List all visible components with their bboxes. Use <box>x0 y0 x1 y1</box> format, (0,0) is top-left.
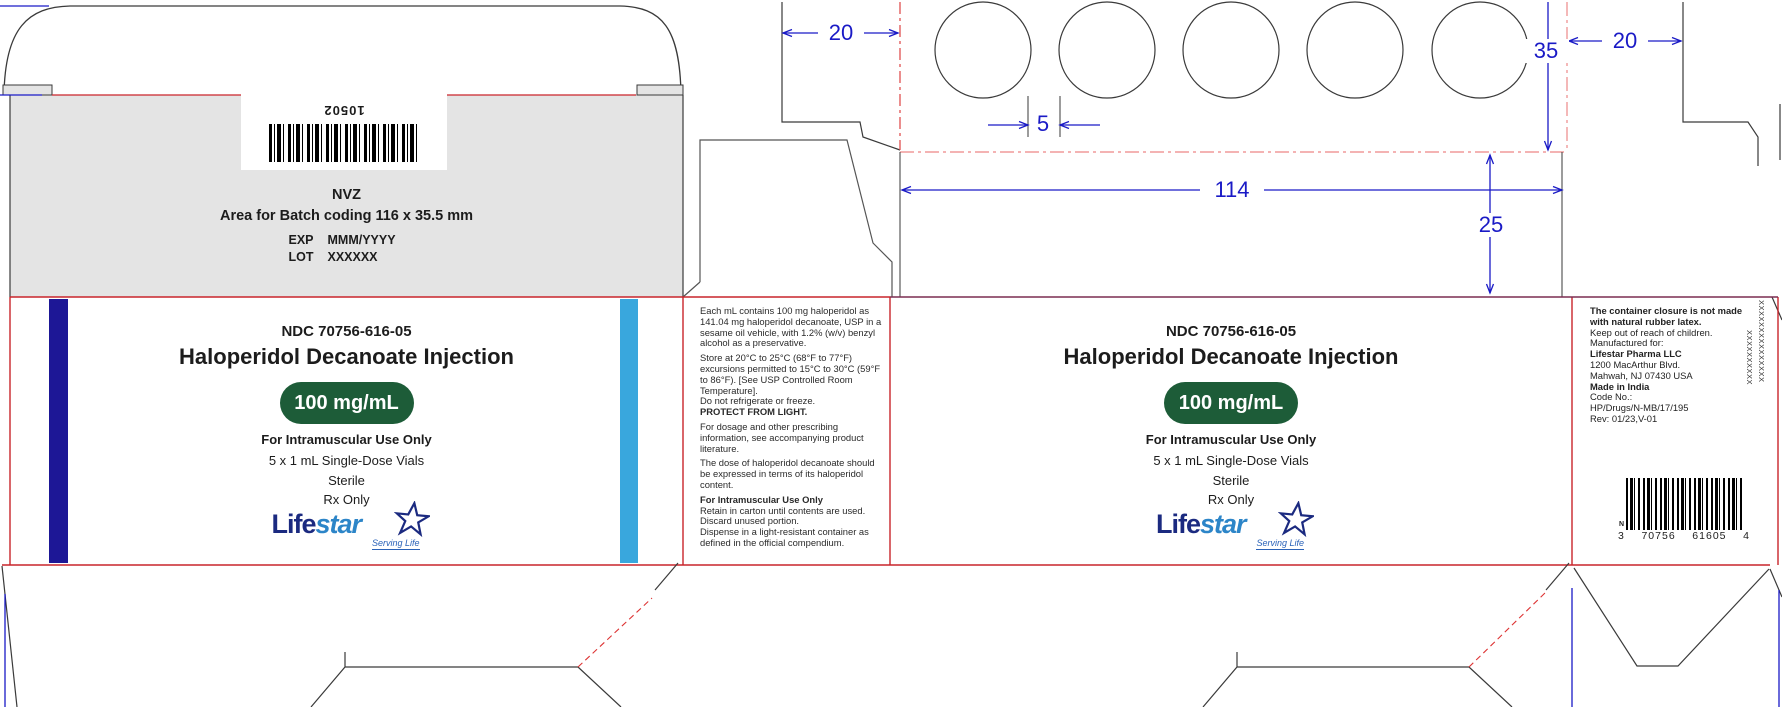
logo-life-text: Life <box>272 509 316 539</box>
rx-statement: Rx Only <box>890 492 1572 507</box>
lot-row: LOT XXXXXX <box>10 250 683 264</box>
im-use-text: For Intramuscular Use Only <box>700 495 884 506</box>
batch-code-label: NVZ <box>10 187 683 203</box>
right-flap-right-edge <box>1683 2 1758 166</box>
dim-114: 114 <box>1200 178 1264 202</box>
middle-tab-outline <box>683 140 892 297</box>
exp-row: EXP MMM/YYYY <box>10 233 683 247</box>
logo-life-text: Life <box>1156 509 1200 539</box>
dispense-text: Dispense in a light-resistant container … <box>700 527 884 549</box>
ndc-digit-group: 61605 <box>1692 530 1726 542</box>
dosage-info-text: For dosage and other prescribing informa… <box>700 422 884 454</box>
sterile-statement: Sterile <box>890 473 1572 488</box>
rx-statement: Rx Only <box>10 492 683 507</box>
ndc-barcode-digits: 3 70756 61605 4 <box>1618 530 1750 542</box>
lot-value: XXXXXX <box>328 250 420 264</box>
pack-statement: 5 x 1 mL Single-Dose Vials <box>10 453 683 468</box>
serial-placeholder-1: XXXXXXXXXXXXXXX <box>1757 300 1766 383</box>
lifestar-logo: Lifestar Serving Life <box>10 509 683 553</box>
lot-label: LOT <box>274 250 314 264</box>
product-title: Haloperidol Decanoate Injection <box>890 344 1572 370</box>
ndc-digit-group: 70756 <box>1641 530 1675 542</box>
latex-note: The container closure is not made with n… <box>1590 306 1762 328</box>
batch-barcode <box>269 124 419 162</box>
star-icon <box>1278 501 1314 539</box>
left-lock-tab <box>3 85 52 95</box>
side-text-panel: Each mL contains 100 mg haloperidol as 1… <box>700 306 884 553</box>
manufacturer-address2: Mahwah, NJ 07430 USA <box>1590 371 1762 382</box>
exp-label: EXP <box>274 233 314 247</box>
ndc-barcode-n: N <box>1619 521 1624 528</box>
star-icon <box>394 501 430 539</box>
lifestar-logo: Lifestar Serving Life <box>890 509 1572 553</box>
logo-tagline: Serving Life <box>1256 538 1304 550</box>
logo-star-text: star <box>316 509 362 539</box>
ndc-number: NDC 70756-616-05 <box>890 323 1572 340</box>
protect-light-text: PROTECT FROM LIGHT. <box>700 407 884 418</box>
serial-placeholder-2: XXXXXXXXXX <box>1745 330 1754 385</box>
logo-tagline: Serving Life <box>372 538 420 550</box>
right-lock-tab <box>637 85 683 95</box>
route-statement: For Intramuscular Use Only <box>890 432 1572 447</box>
vial-hole-circles <box>935 2 1528 98</box>
top-flap-arch <box>4 6 681 95</box>
dim-20-left: 20 <box>818 21 864 45</box>
logo-star-text: star <box>1200 509 1246 539</box>
batch-area-note: Area for Batch coding 116 x 35.5 mm <box>10 208 683 224</box>
product-title: Haloperidol Decanoate Injection <box>10 344 683 370</box>
strength-badge: 100 mg/mL <box>280 382 414 424</box>
ndc-number: NDC 70756-616-05 <box>10 323 683 340</box>
retain-carton-text: Retain in carton until contents are used… <box>700 506 884 528</box>
right-edge-marks <box>1772 104 1782 320</box>
sterile-statement: Sterile <box>10 473 683 488</box>
exp-value: MMM/YYYY <box>328 233 420 247</box>
revision-number: Rev: 01/23,V-01 <box>1590 414 1762 425</box>
front-display-panel: NDC 70756-616-05 Haloperidol Decanoate I… <box>10 297 683 565</box>
bottom-flap-outlines <box>2 563 1782 707</box>
dim-35: 35 <box>1523 39 1569 63</box>
dim-25: 25 <box>1468 213 1514 237</box>
ndc-barcode: N 3 70756 61605 4 <box>1618 478 1750 548</box>
pack-statement: 5 x 1 mL Single-Dose Vials <box>890 453 1572 468</box>
dim-20-right: 20 <box>1602 29 1648 53</box>
ndc-barcode-bars <box>1626 478 1742 530</box>
batch-barcode-number: 10502 <box>241 103 447 118</box>
route-statement: For Intramuscular Use Only <box>10 432 683 447</box>
ndc-digit-group: 4 <box>1743 530 1750 542</box>
dim-5: 5 <box>1030 112 1056 136</box>
bottom-flap-glue-dashes <box>578 592 1546 667</box>
ndc-digit-group: 3 <box>1618 530 1625 542</box>
strength-badge: 100 mg/mL <box>1164 382 1298 424</box>
storage-text: Store at 20°C to 25°C (68°F to 77°F) exc… <box>700 353 884 396</box>
regulatory-panel: The container closure is not made with n… <box>1590 306 1762 425</box>
dose-expression-text: The dose of haloperidol decanoate should… <box>700 458 884 490</box>
back-display-panel: NDC 70756-616-05 Haloperidol Decanoate I… <box>890 297 1572 565</box>
carton-artwork-sheet: 10502 NVZ Area for Batch coding 116 x 35… <box>0 0 1782 707</box>
composition-text: Each mL contains 100 mg haloperidol as 1… <box>700 306 884 349</box>
